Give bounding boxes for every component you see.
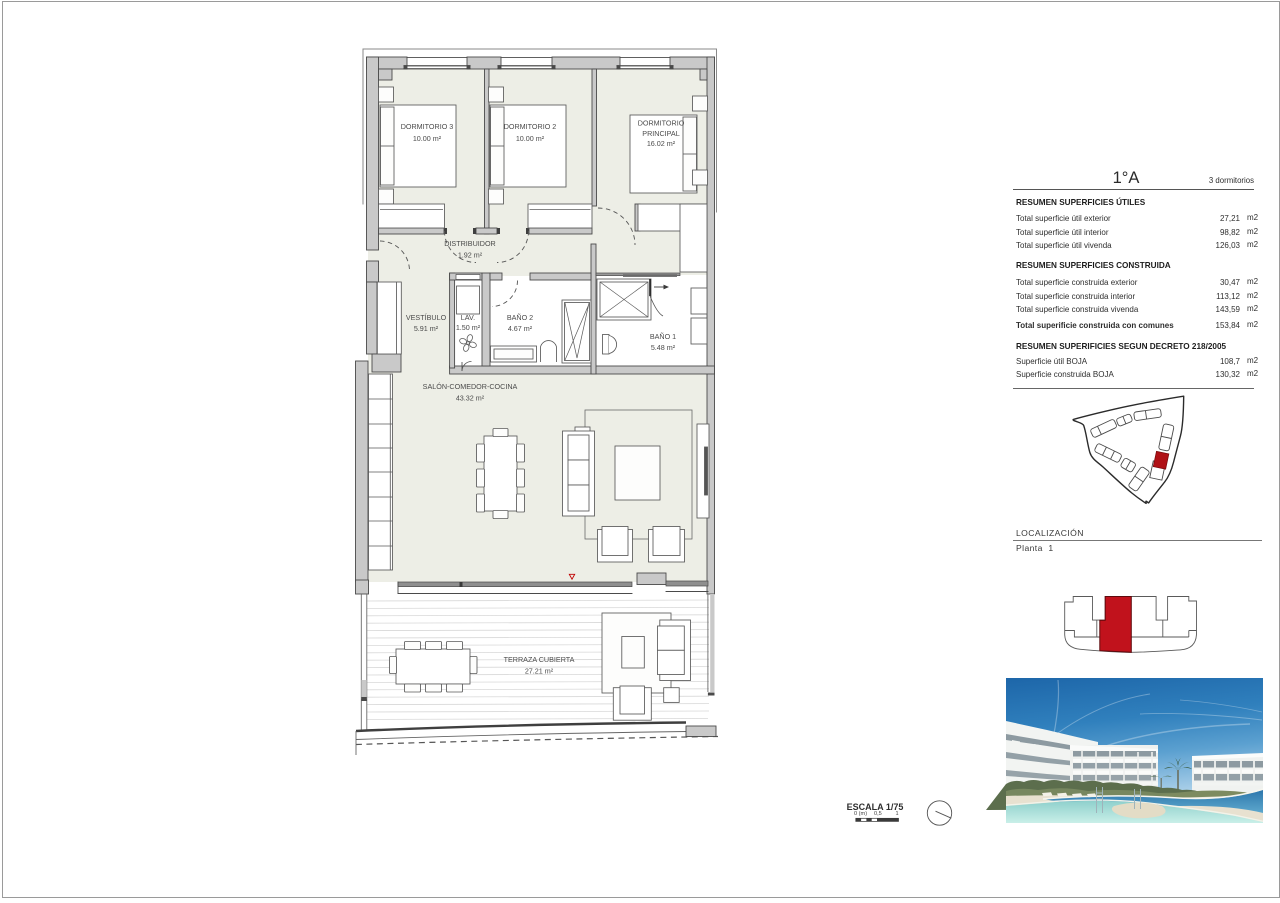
svg-text:SALÓN-COMEDOR-COCINA: SALÓN-COMEDOR-COCINA — [423, 382, 518, 391]
svg-text:43.32 m²: 43.32 m² — [456, 394, 485, 403]
svg-text:1.92 m²: 1.92 m² — [458, 251, 483, 260]
svg-text:LAV.: LAV. — [461, 313, 475, 322]
svg-text:BAÑO 1: BAÑO 1 — [650, 332, 676, 341]
svg-text:DISTRIBUIDOR: DISTRIBUIDOR — [444, 239, 496, 248]
svg-text:VESTÍBULO: VESTÍBULO — [406, 313, 447, 322]
svg-text:BAÑO 2: BAÑO 2 — [507, 313, 533, 322]
svg-text:27.21 m²: 27.21 m² — [525, 667, 554, 676]
svg-text:10.00 m²: 10.00 m² — [516, 134, 545, 143]
svg-text:TERRAZA CUBIERTA: TERRAZA CUBIERTA — [504, 655, 575, 664]
svg-text:4.67 m²: 4.67 m² — [508, 324, 533, 333]
svg-text:5.48 m²: 5.48 m² — [651, 343, 676, 352]
svg-text:1.50 m²: 1.50 m² — [456, 323, 481, 332]
svg-text:16.02 m²: 16.02 m² — [647, 139, 676, 148]
svg-text:DORMITORIO 2: DORMITORIO 2 — [504, 122, 557, 131]
svg-text:10.00 m²: 10.00 m² — [413, 134, 442, 143]
svg-text:PRINCIPAL: PRINCIPAL — [642, 129, 679, 138]
svg-text:5.91 m²: 5.91 m² — [414, 324, 439, 333]
svg-text:DORMITORIO: DORMITORIO — [638, 119, 685, 128]
svg-text:DORMITORIO 3: DORMITORIO 3 — [401, 122, 454, 131]
